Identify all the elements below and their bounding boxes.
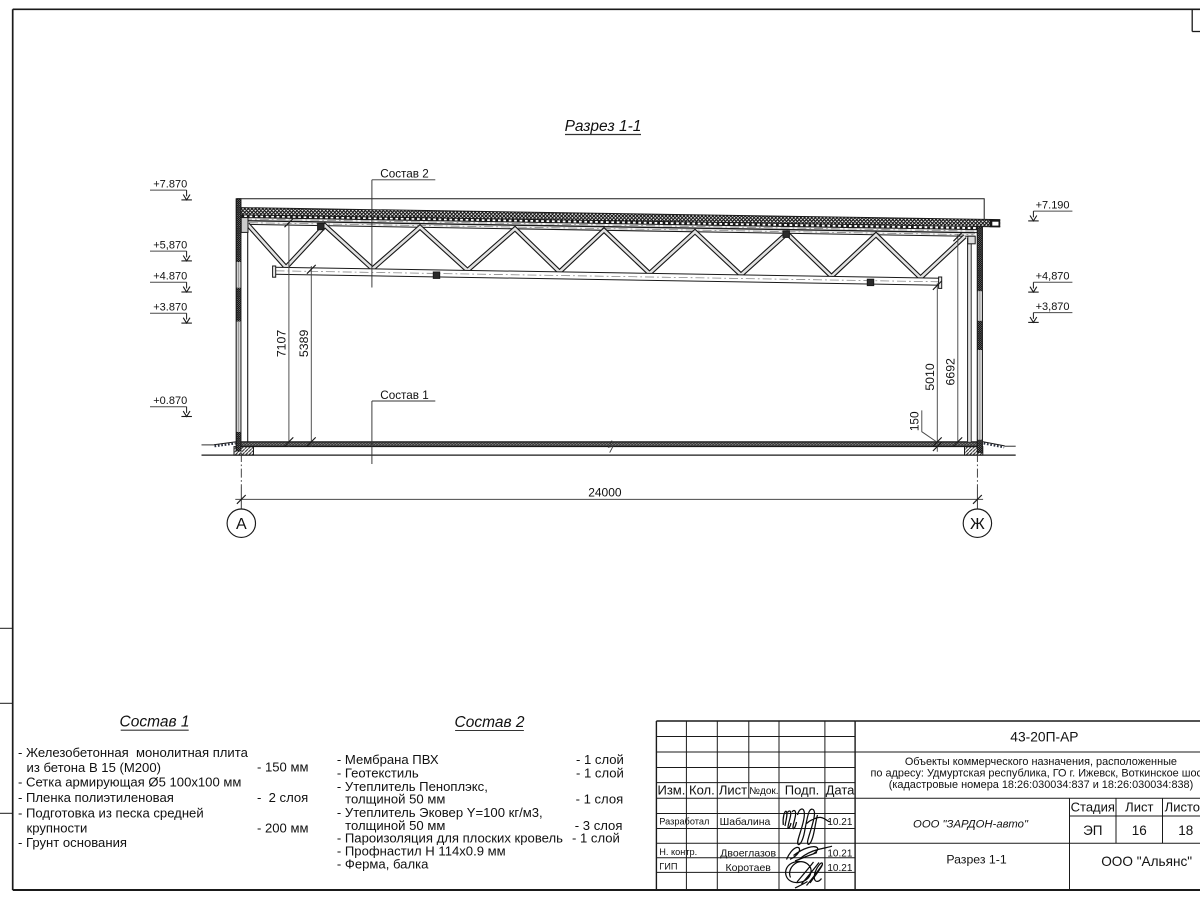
svg-text:Н. контр.: Н. контр. (659, 847, 697, 857)
svg-text:Листов: Листов (1165, 800, 1200, 815)
svg-text:Состав 1: Состав 1 (120, 714, 190, 731)
svg-text:Объекты коммерческого назначен: Объекты коммерческого назначения, распол… (905, 756, 1177, 768)
svg-text:Стадия: Стадия (1071, 800, 1115, 815)
svg-text:- Сетка армирующая Ø5 100х100: - Сетка армирующая Ø5 100х100 мм (18, 775, 241, 790)
svg-text:43-20П-АР: 43-20П-АР (1010, 729, 1078, 744)
svg-text:ГИП: ГИП (659, 862, 677, 872)
svg-text:- Подготовка из песка средней: - Подготовка из песка средней (18, 805, 204, 820)
svg-text:ООО "ЗАРДОН-авто": ООО "ЗАРДОН-авто" (913, 819, 1029, 831)
svg-text:- 200 мм: - 200 мм (257, 821, 309, 836)
svg-text:ООО "Альянс": ООО "Альянс" (1101, 854, 1192, 869)
svg-text:150: 150 (908, 411, 922, 431)
svg-text:Лист: Лист (719, 782, 747, 797)
svg-text:(кадастровые номера 18:26:0300: (кадастровые номера 18:26:030034:837 и 1… (889, 779, 1194, 791)
svg-text:- 1 слой: - 1 слой (576, 752, 624, 767)
svg-text:Двоеглазов: Двоеглазов (720, 847, 776, 859)
svg-text:Лист: Лист (1125, 800, 1153, 815)
svg-text:- Ферма, балка: - Ферма, балка (337, 856, 429, 871)
svg-text:Ж: Ж (970, 516, 985, 533)
svg-text:Подп.: Подп. (785, 783, 820, 798)
svg-text:10.21: 10.21 (827, 817, 852, 828)
svg-text:Изм.: Изм. (657, 783, 685, 798)
svg-text:- 1 слоя: - 1 слоя (576, 792, 624, 807)
svg-text:ЭП: ЭП (1083, 823, 1102, 838)
svg-text:24000: 24000 (588, 486, 622, 500)
svg-text:16: 16 (1132, 823, 1147, 838)
svg-text:+0.870: +0.870 (153, 395, 187, 407)
svg-text:- 2 слоя: - 2 слоя (257, 790, 308, 805)
svg-text:А: А (236, 516, 247, 533)
svg-text:18: 18 (1178, 823, 1193, 838)
svg-text:5389: 5389 (297, 330, 311, 358)
svg-text:+4.870: +4.870 (153, 270, 187, 282)
svg-text:6692: 6692 (943, 358, 957, 386)
svg-text:+7.870: +7.870 (153, 178, 187, 190)
svg-text:- 150 мм: - 150 мм (257, 760, 309, 775)
svg-text:+5,870: +5,870 (153, 239, 187, 251)
svg-text:Состав 1: Состав 1 (380, 389, 428, 402)
svg-text:10.21: 10.21 (827, 848, 852, 859)
svg-text:Шабалина: Шабалина (720, 816, 771, 828)
svg-text:из бетона В 15 (М200): из бетона В 15 (М200) (27, 760, 162, 775)
svg-text:- Железобетонная монолитная п: - Железобетонная монолитная плита (18, 745, 249, 760)
svg-text:+4,870: +4,870 (1036, 271, 1070, 283)
svg-text:по адресу: Удмуртская республи: по адресу: Удмуртская республика, ГО г. … (871, 767, 1200, 779)
svg-text:Кол.: Кол. (689, 783, 715, 798)
svg-text:+7.190: +7.190 (1036, 199, 1070, 211)
svg-text:№док.: №док. (749, 786, 778, 797)
svg-text:Дата: Дата (826, 783, 856, 798)
svg-text:- Мембрана ПВХ: - Мембрана ПВХ (337, 752, 439, 767)
svg-text:Разрез 1-1: Разрез 1-1 (946, 853, 1007, 867)
svg-text:5010: 5010 (923, 363, 937, 391)
svg-text:крупности: крупности (27, 821, 88, 836)
svg-text:Разрез 1-1: Разрез 1-1 (565, 118, 642, 135)
svg-text:Коротаев: Коротаев (726, 862, 772, 874)
svg-text:Состав 2: Состав 2 (455, 714, 525, 731)
svg-text:Разработал: Разработал (659, 816, 709, 826)
svg-text:- 1 слой: - 1 слой (572, 830, 620, 845)
svg-text:+3,870: +3,870 (1036, 301, 1070, 313)
svg-text:- Грунт основания: - Грунт основания (18, 835, 127, 850)
svg-text:Состав 2: Состав 2 (380, 168, 428, 181)
svg-text:+3.870: +3.870 (153, 302, 187, 314)
svg-text:7107: 7107 (274, 330, 288, 358)
svg-text:- 1 слой: - 1 слой (576, 766, 624, 781)
svg-text:10.21: 10.21 (827, 863, 852, 874)
svg-text:- Пленка полиэтиленовая: - Пленка полиэтиленовая (18, 790, 174, 805)
